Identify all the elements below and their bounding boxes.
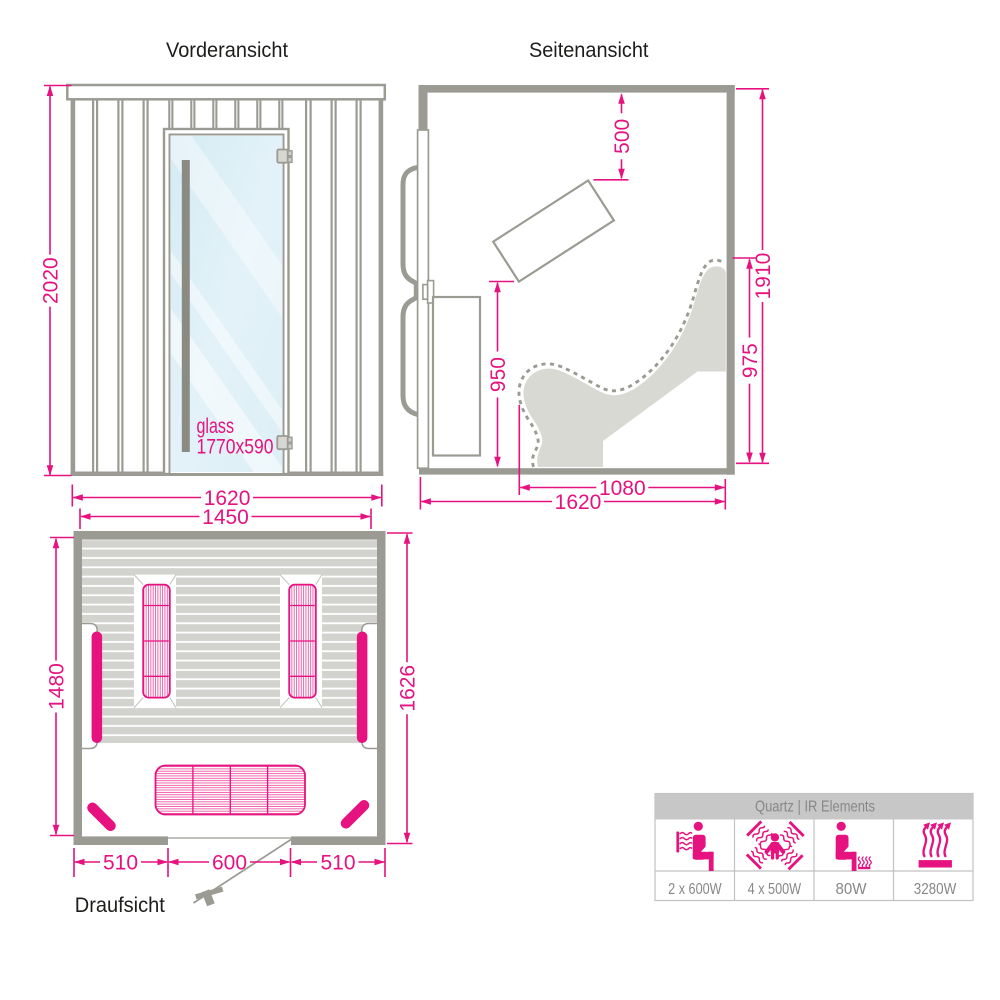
svg-text:2 x 600W: 2 x 600W xyxy=(668,881,722,898)
svg-text:1626: 1626 xyxy=(397,665,420,712)
svg-text:1770x590: 1770x590 xyxy=(197,436,274,459)
svg-text:1080: 1080 xyxy=(599,477,646,500)
svg-text:975: 975 xyxy=(739,343,762,378)
svg-text:Quartz | IR Elements: Quartz | IR Elements xyxy=(755,799,875,816)
svg-text:1480: 1480 xyxy=(46,663,69,710)
svg-text:510: 510 xyxy=(103,852,138,875)
svg-text:1910: 1910 xyxy=(752,253,775,300)
svg-text:Draufsicht: Draufsicht xyxy=(75,894,165,917)
svg-text:600: 600 xyxy=(212,852,247,875)
svg-text:Vorderansicht: Vorderansicht xyxy=(166,38,288,62)
svg-text:80W: 80W xyxy=(836,881,868,898)
svg-text:1620: 1620 xyxy=(555,491,602,514)
svg-text:500: 500 xyxy=(611,119,634,154)
svg-text:510: 510 xyxy=(320,852,355,875)
svg-text:2020: 2020 xyxy=(40,257,63,304)
svg-text:4 x 500W: 4 x 500W xyxy=(748,881,802,898)
svg-text:950: 950 xyxy=(487,357,510,392)
svg-text:1450: 1450 xyxy=(202,506,249,529)
svg-text:3280W: 3280W xyxy=(914,881,957,898)
svg-text:Seitenansicht: Seitenansicht xyxy=(529,38,649,62)
